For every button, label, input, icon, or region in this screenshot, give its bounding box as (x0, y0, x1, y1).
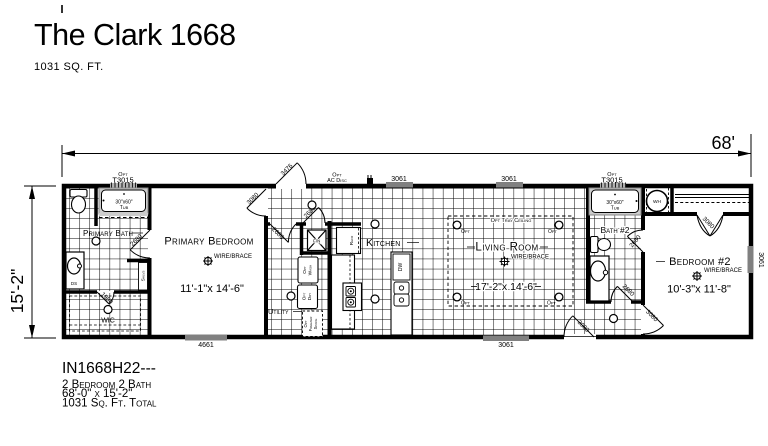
svg-text:3061: 3061 (498, 342, 514, 349)
svg-text:Wash: Wash (308, 265, 314, 276)
svg-text:WIRE/BRACE: WIRE/BRACE (511, 255, 549, 261)
svg-text:17'-2"x 14'-6": 17'-2"x 14'-6" (475, 281, 537, 293)
svg-text:Opt: Opt (461, 229, 471, 235)
svg-text:Bedroom #2: Bedroom #2 (669, 256, 731, 268)
svg-text:DW: DW (398, 263, 404, 272)
svg-text:3061: 3061 (757, 252, 764, 268)
svg-text:3061: 3061 (391, 176, 407, 183)
svg-text:11'-1"x 14'-6": 11'-1"x 14'-6" (180, 283, 244, 295)
svg-text:Tub: Tub (611, 206, 620, 212)
svg-text:Refr: Refr (349, 235, 355, 245)
svg-text:WH: WH (653, 199, 662, 205)
svg-text:4661: 4661 (198, 342, 214, 349)
svg-text:F/N: F/N (313, 239, 320, 244)
svg-text:Opt: Opt (461, 301, 471, 307)
svg-text:IN1668H22---: IN1668H22--- (62, 360, 156, 377)
svg-text:Utility: Utility (268, 307, 289, 316)
svg-text:WIRE/BRACE: WIRE/BRACE (704, 268, 742, 274)
svg-text:T3015: T3015 (601, 176, 622, 185)
svg-text:Opt Tray Ceiling: Opt Tray Ceiling (491, 218, 532, 224)
svg-text:Living Room: Living Room (475, 242, 538, 254)
svg-text:Opt: Opt (302, 293, 308, 301)
svg-text:The Clark 1668: The Clark 1668 (34, 18, 236, 52)
svg-text:15'-2": 15'-2" (7, 269, 27, 314)
svg-text:AC Disc: AC Disc (327, 178, 347, 184)
svg-text:DS: DS (71, 281, 77, 286)
svg-text:Kitchen: Kitchen (366, 237, 400, 249)
svg-text:Bath #2: Bath #2 (600, 225, 629, 235)
svg-text:Dry: Dry (307, 293, 313, 301)
svg-text:Opt: Opt (548, 229, 558, 235)
svg-text:Shlvs: Shlvs (141, 271, 147, 282)
svg-text:3080: 3080 (644, 309, 659, 324)
svg-text:1031 Sq. Ft. Total: 1031 Sq. Ft. Total (62, 398, 157, 410)
svg-text:WIRE/BRACE: WIRE/BRACE (214, 254, 252, 260)
svg-text:Opt: Opt (547, 301, 557, 307)
svg-text:68': 68' (712, 133, 735, 153)
svg-text:Tub: Tub (120, 205, 129, 211)
svg-text:10'-3"x 11'-8": 10'-3"x 11'-8" (667, 284, 731, 296)
svg-text:T3015: T3015 (112, 176, 133, 185)
svg-text:WIC: WIC (101, 318, 115, 325)
svg-text:3080: 3080 (701, 216, 716, 231)
svg-text:3476: 3476 (280, 162, 295, 177)
svg-text:Primary Bedroom: Primary Bedroom (164, 236, 253, 248)
svg-text:3080: 3080 (246, 191, 261, 206)
svg-text:3061: 3061 (501, 176, 517, 183)
svg-text:Opt: Opt (302, 266, 308, 274)
svg-text:Space: Space (313, 319, 318, 330)
svg-text:1031 SQ. FT.: 1031 SQ. FT. (34, 61, 104, 73)
svg-text:Primary Bath: Primary Bath (83, 229, 133, 238)
